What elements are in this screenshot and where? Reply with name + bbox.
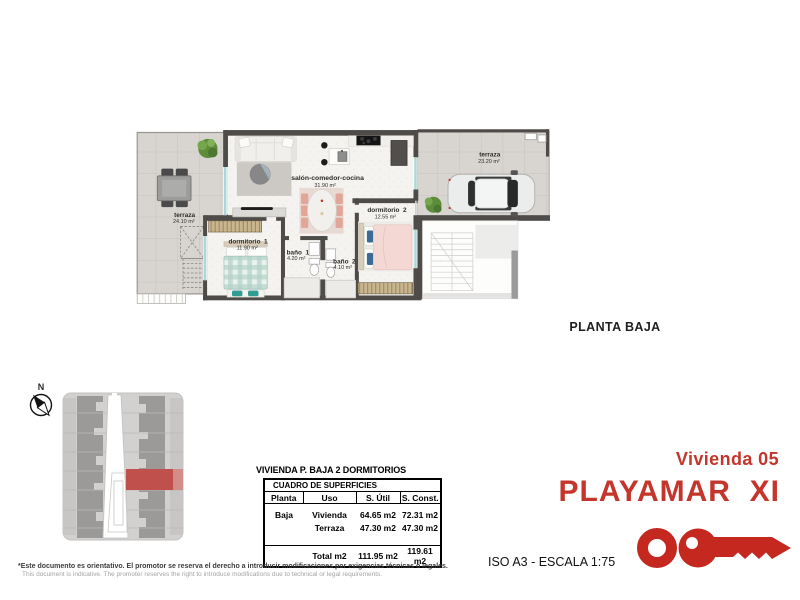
surfaces-table: CUADRO DE SUPERFICIES Planta Uso S. Útil… xyxy=(263,478,442,568)
site-plan: N xyxy=(20,375,190,545)
vent-box xyxy=(538,135,546,142)
wardrobe xyxy=(209,221,262,232)
area-dormitorio1: 11.90 m² xyxy=(237,246,258,252)
cell-const: 47.30 m2 xyxy=(400,521,441,534)
highlighted-unit xyxy=(126,469,183,490)
table-row: Terraza 47.30 m2 47.30 m2 xyxy=(264,521,441,534)
disclaimer-en: This document is indicative. The promote… xyxy=(22,571,382,578)
key-ring-logo xyxy=(630,520,800,575)
cell-util: 47.30 m2 xyxy=(356,521,400,534)
stool xyxy=(321,159,327,165)
scale-label: ISO A3 - ESCALA 1:75 xyxy=(488,555,615,569)
bed-bench xyxy=(227,290,264,297)
label-terraza-right: terraza xyxy=(479,152,500,159)
col-util: S. Útil xyxy=(356,492,400,504)
shower xyxy=(326,280,356,298)
cell-uso: Terraza xyxy=(303,521,356,534)
area-dormitorio2: 12.55 m² xyxy=(375,214,397,220)
area-bano2: 4.10 m² xyxy=(334,265,353,271)
bedroom2-furniture xyxy=(358,222,413,294)
col-const: S. Const. xyxy=(400,492,441,504)
col-uso: Uso xyxy=(303,492,356,504)
area-salon: 31.90 m² xyxy=(314,183,336,189)
dining-set xyxy=(299,188,343,234)
disclaimer-es: *Este documento es orientativo. El promo… xyxy=(18,563,448,570)
north-label: N xyxy=(38,382,45,392)
area-terraza-left: 24.10 m² xyxy=(173,219,195,225)
label-terraza-left: terraza xyxy=(174,212,195,219)
site-map xyxy=(63,393,183,540)
label-dormitorio2: dormitorio 2 xyxy=(367,207,407,214)
terrace-fence xyxy=(137,294,185,304)
logo-ring xyxy=(643,534,672,563)
cell-planta xyxy=(264,521,303,534)
table-row: Baja Vivienda 64.65 m2 72.31 m2 xyxy=(264,504,441,522)
north-compass-icon: N xyxy=(29,382,52,418)
coffee-table xyxy=(250,164,271,185)
table-title: VIVIENDA P. BAJA 2 DORMITORIOS xyxy=(256,465,406,475)
tv-unit xyxy=(233,207,286,217)
sink xyxy=(309,242,319,255)
common-stairs xyxy=(417,218,517,298)
toilet xyxy=(309,259,319,265)
wardrobe xyxy=(358,283,413,294)
stool xyxy=(321,142,327,148)
sofa xyxy=(235,136,296,161)
shower xyxy=(284,278,319,298)
col-planta: Planta xyxy=(264,492,303,504)
label-salon: salón-comedor-cocina xyxy=(291,175,364,182)
area-terraza-right: 23.20 m² xyxy=(478,159,500,165)
fridge xyxy=(391,141,407,166)
plan-caption: PLANTA BAJA xyxy=(560,320,670,334)
table-header: CUADRO DE SUPERFICIES xyxy=(264,479,441,492)
right-terrace xyxy=(417,129,550,221)
logo-key xyxy=(679,529,792,568)
cell-const: 72.31 m2 xyxy=(400,504,441,522)
label-dormitorio1: dormitorio 1 xyxy=(228,238,268,245)
car-icon xyxy=(448,170,535,217)
area-bano1: 4.20 m² xyxy=(287,256,306,262)
floor-plan: terraza 24.10 m² salón-comedor-cocina 31… xyxy=(130,95,660,345)
vent-box xyxy=(525,133,536,139)
unit-number: Vivienda 05 xyxy=(676,449,779,470)
cell-planta: Baja xyxy=(264,504,303,522)
dining-table xyxy=(307,189,336,231)
cooktop xyxy=(356,136,380,146)
cell-uso: Vivienda xyxy=(303,504,356,522)
cell-util: 64.65 m2 xyxy=(356,504,400,522)
kitchen-island xyxy=(329,149,349,165)
project-name: PLAYAMAR XI xyxy=(558,475,780,509)
page: { "floor_plan": { "caption": "PLANTA BAJ… xyxy=(0,0,800,600)
